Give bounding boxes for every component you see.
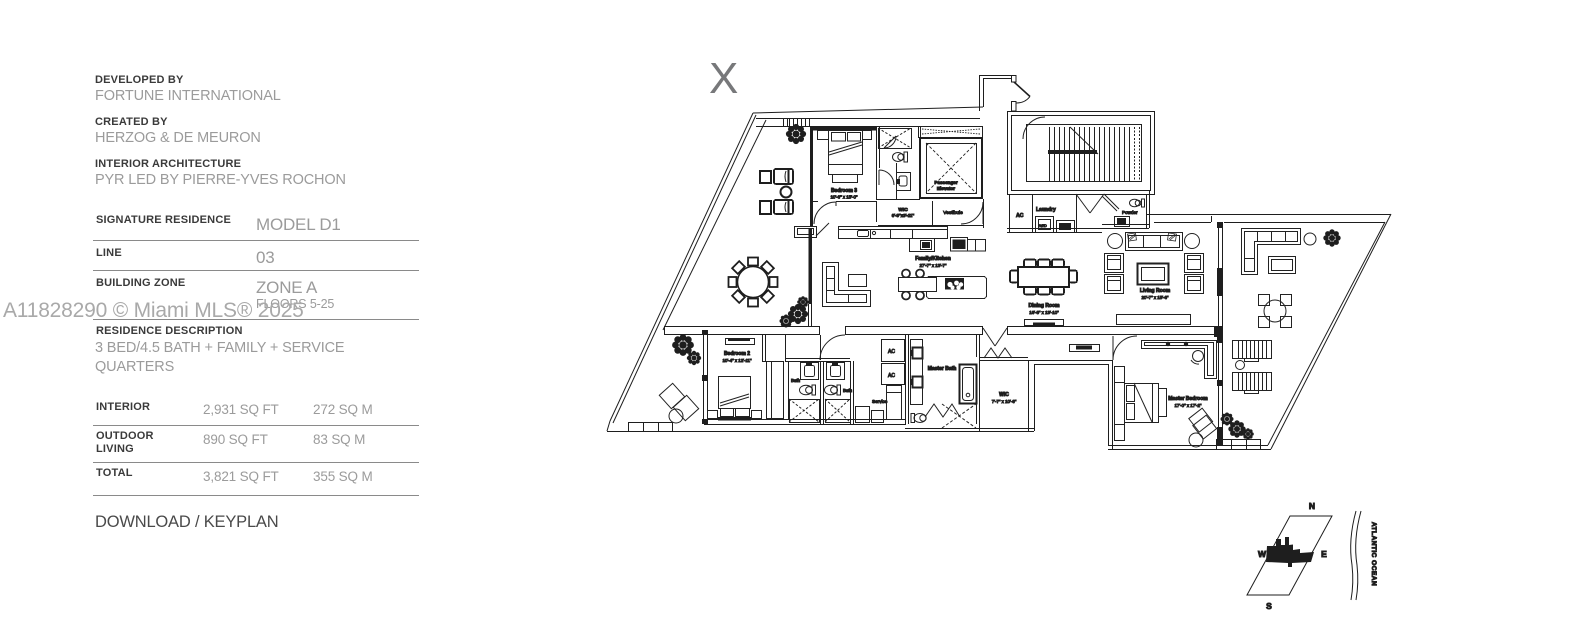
svg-text:Passenger: Passenger — [934, 180, 957, 185]
svg-text:10'-6" x 15'-0": 10'-6" x 15'-0" — [830, 195, 857, 200]
svg-text:AC: AC — [888, 349, 895, 355]
svg-text:Bedroom 3: Bedroom 3 — [831, 188, 857, 194]
svg-text:7'-7" x 10'-6": 7'-7" x 10'-6" — [992, 399, 1017, 404]
svg-text:17'-0" x 17'-2": 17'-0" x 17'-2" — [1174, 403, 1201, 408]
svg-text:WIC: WIC — [999, 392, 1009, 398]
svg-text:6'-3"x3'-11": 6'-3"x3'-11" — [892, 213, 915, 218]
svg-text:N: N — [1309, 501, 1315, 511]
svg-text:27'-7" x 13'-7": 27'-7" x 13'-7" — [919, 263, 946, 268]
svg-text:Vestibule: Vestibule — [943, 210, 963, 216]
svg-text:E: E — [1321, 549, 1327, 559]
svg-text:AC: AC — [888, 373, 895, 379]
svg-text:Dining Room: Dining Room — [1028, 303, 1060, 309]
svg-text:AC: AC — [1016, 213, 1024, 219]
svg-text:Bedroom 2: Bedroom 2 — [724, 351, 750, 357]
svg-text:Bath: Bath — [791, 378, 801, 383]
svg-text:Master Bath: Master Bath — [928, 366, 957, 372]
svg-text:S: S — [1266, 601, 1272, 611]
svg-text:ATLANTIC OCEAN: ATLANTIC OCEAN — [1370, 522, 1377, 586]
svg-text:Laundry: Laundry — [1036, 207, 1056, 213]
svg-text:W: W — [1258, 549, 1267, 559]
svg-text:10'-4" x 12'-11": 10'-4" x 12'-11" — [722, 358, 752, 363]
svg-text:20'-7" x 15'-6": 20'-7" x 15'-6" — [1141, 295, 1168, 300]
svg-text:16'-8" x 13'-10": 16'-8" x 13'-10" — [1029, 310, 1059, 315]
svg-text:Living Room: Living Room — [1140, 288, 1171, 294]
svg-text:Master Bedroom: Master Bedroom — [1168, 396, 1208, 402]
svg-text:Elevator: Elevator — [937, 186, 955, 191]
svg-text:Bath: Bath — [843, 388, 853, 393]
svg-text:W/D: W/D — [1039, 223, 1047, 228]
svg-text:Powder: Powder — [1122, 210, 1138, 215]
svg-text:Family/Kitchen: Family/Kitchen — [915, 256, 951, 262]
svg-text:Service: Service — [872, 399, 888, 404]
